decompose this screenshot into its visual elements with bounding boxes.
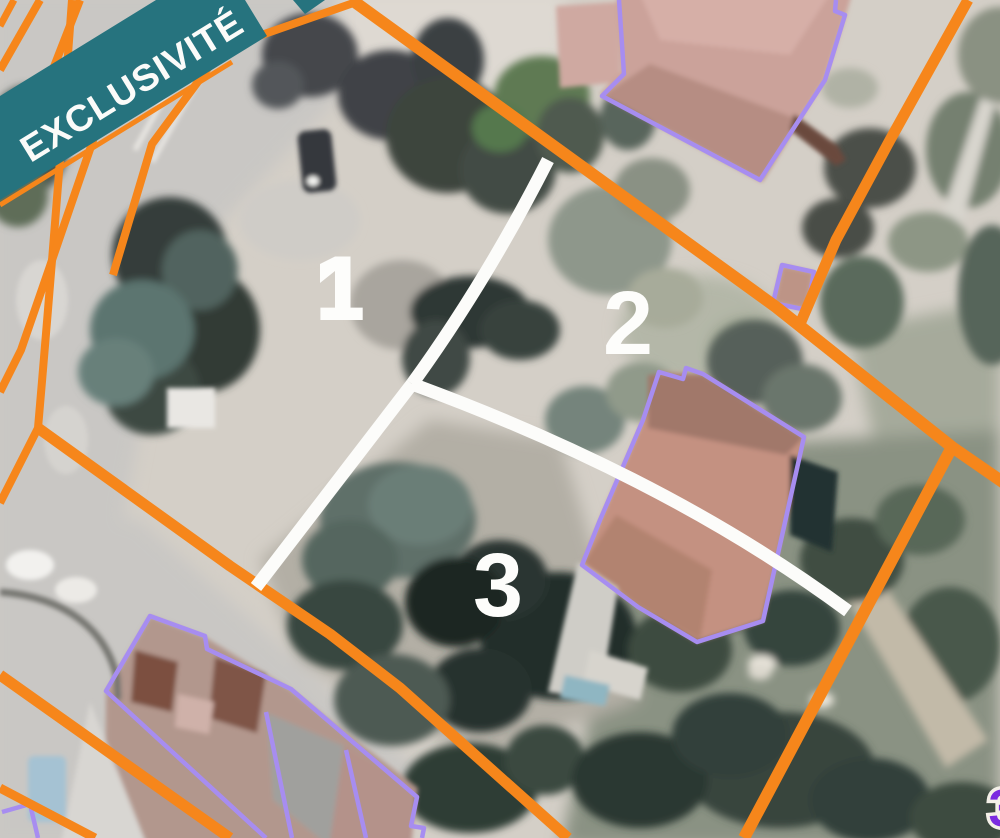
svg-text:3: 3 bbox=[473, 536, 523, 636]
svg-text:3: 3 bbox=[989, 780, 1000, 838]
svg-text:2: 2 bbox=[603, 274, 653, 374]
